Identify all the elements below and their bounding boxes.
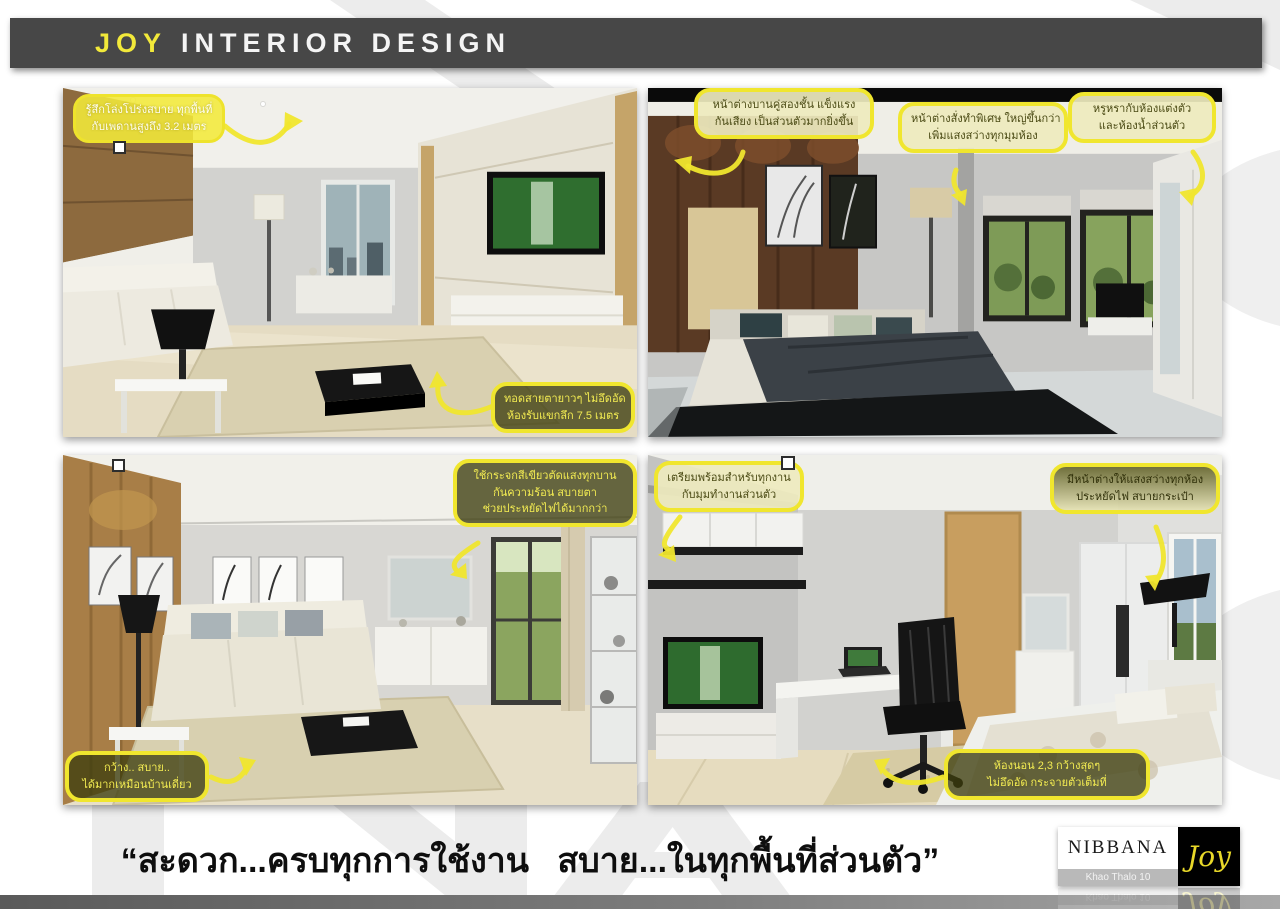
- logo-white-block: NIBBANA Khao Thalo 10: [1058, 827, 1178, 886]
- annotation-line: กันเสียง เป็นส่วนตัวมากยิ่งขึ้น: [707, 114, 861, 131]
- render-living-room-hall: รู้สึกโล่งโปร่งสบาย ทุกพื้นที่ กับเพดานส…: [63, 88, 637, 437]
- annotation-line: ห้องรับแขกลึก 7.5 เมตร: [504, 408, 622, 425]
- brand-joy-label: JOY: [95, 28, 167, 59]
- annotation-line: ประหยัดไฟ สบายกระเป๋า: [1063, 489, 1207, 506]
- render-bedroom-workspace: เตรียมพร้อมสำหรับทุกงาน กับมุมทำงานส่วนต…: [648, 455, 1222, 805]
- render-living-room-sofa: ใช้กระจกสีเขียวตัดแสงทุกบาน กันความร้อน …: [63, 455, 637, 805]
- logo-project-name: Khao Thalo 10: [1058, 869, 1178, 886]
- annotation-line: รู้สึกโล่งโปร่งสบาย ทุกพื้นที่: [85, 102, 213, 119]
- header-bar: JOY INTERIOR DESIGN: [10, 18, 1262, 68]
- annotation-dressing-room: หรูหรากับห้องแต่งตัว และห้องน้ำส่วนตัว: [1068, 92, 1216, 143]
- annotation-line: กับมุมทำงานส่วนตัว: [667, 487, 791, 504]
- annotation-line: กว้าง.. สบาย..: [78, 760, 196, 777]
- annotation-line: ทอดสายตายาวๆ ไม่อึดอัด: [504, 391, 622, 408]
- annotation-line: ไม่อึดอัด กระจายตัวเต็มที่: [957, 775, 1137, 792]
- annotation-line: หรูหรากับห้องแต่งตัว: [1081, 101, 1203, 118]
- annotation-line: ใช้กระจกสีเขียวตัดแสงทุกบาน: [466, 468, 624, 485]
- annotation-ceiling-height: รู้สึกโล่งโปร่งสบาย ทุกพื้นที่ กับเพดานส…: [73, 94, 225, 143]
- slide-page: JOY INTERIOR DESIGN: [0, 0, 1280, 909]
- annotation-green-glass: ใช้กระจกสีเขียวตัดแสงทุกบาน กันความร้อน …: [453, 459, 637, 527]
- annotation-line: ได้มากเหมือนบ้านเดี่ยว: [78, 777, 196, 794]
- annotation-line: และห้องน้ำส่วนตัว: [1081, 118, 1203, 135]
- render-master-bedroom: หน้าต่างบานคู่สองชั้น แข็งแรง กันเสียง เ…: [648, 88, 1222, 437]
- nibbana-joy-logo: NIBBANA Khao Thalo 10 Joy: [1058, 827, 1240, 886]
- selection-marker: [113, 141, 126, 154]
- selection-marker: [781, 456, 795, 470]
- page-title: INTERIOR DESIGN: [181, 28, 511, 59]
- annotation-line: หน้าต่างบานคู่สองชั้น แข็งแรง: [707, 97, 861, 114]
- annotation-double-windows: หน้าต่างบานคู่สองชั้น แข็งแรง กันเสียง เ…: [694, 88, 874, 139]
- annotation-line: กันความร้อน สบายตา: [466, 485, 624, 502]
- slide-tagline: “สะดวก...ครบทุกการใช้งาน สบาย...ในทุกพื้…: [0, 833, 1060, 887]
- annotation-line: ช่วยประหยัดไฟได้มากกว่า: [466, 501, 624, 518]
- logo-brand-name: NIBBANA: [1058, 827, 1178, 869]
- annotation-line: ห้องนอน 2,3 กว้างสุดๆ: [957, 758, 1137, 775]
- annotation-line: หน้าต่างสั่งทำพิเศษ ใหญ่ขึ้นกว่า: [911, 111, 1055, 128]
- annotation-custom-windows: หน้าต่างสั่งทำพิเศษ ใหญ่ขึ้นกว่า เพิ่มแส…: [898, 102, 1068, 153]
- annotation-room-depth: ทอดสายตายาวๆ ไม่อึดอัด ห้องรับแขกลึก 7.5…: [491, 382, 635, 433]
- annotation-window-light: มีหน้าต่างให้แสงสว่างทุกห้อง ประหยัดไฟ ส…: [1050, 463, 1220, 514]
- selection-marker: [112, 459, 125, 472]
- annotation-bedroom-size: ห้องนอน 2,3 กว้างสุดๆ ไม่อึดอัด กระจายตั…: [944, 749, 1150, 800]
- annotation-line: เตรียมพร้อมสำหรับทุกงาน: [667, 470, 791, 487]
- annotation-line: กับเพดานสูงถึง 3.2 เมตร: [85, 119, 213, 136]
- annotation-wide-like-house: กว้าง.. สบาย.. ได้มากเหมือนบ้านเดี่ยว: [65, 751, 209, 802]
- annotation-line: เพิ่มแสงสว่างทุกมุมห้อง: [911, 128, 1055, 145]
- logo-reflection: NIBBANA Khao Thalo 10 Joy: [1058, 888, 1240, 909]
- annotation-line: มีหน้าต่างให้แสงสว่างทุกห้อง: [1063, 472, 1207, 489]
- logo-joy-script: Joy: [1178, 827, 1240, 886]
